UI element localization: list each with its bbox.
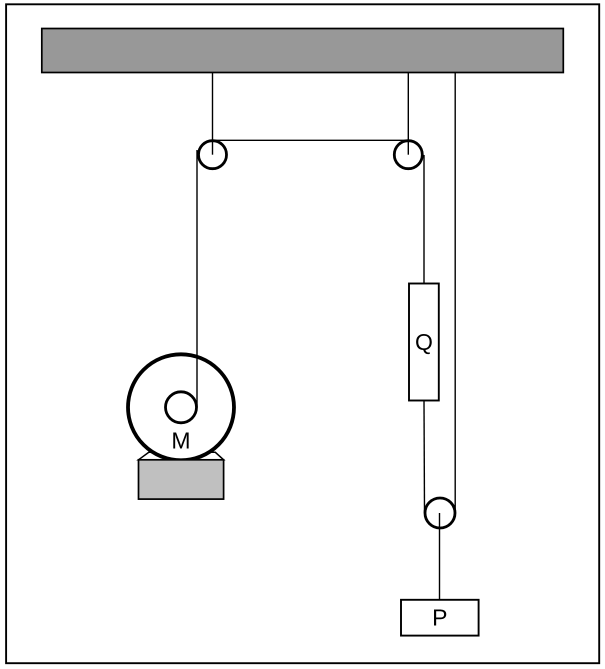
svg-text:Q: Q	[415, 329, 433, 355]
svg-text:P: P	[432, 605, 447, 631]
svg-text:M: M	[171, 428, 190, 454]
